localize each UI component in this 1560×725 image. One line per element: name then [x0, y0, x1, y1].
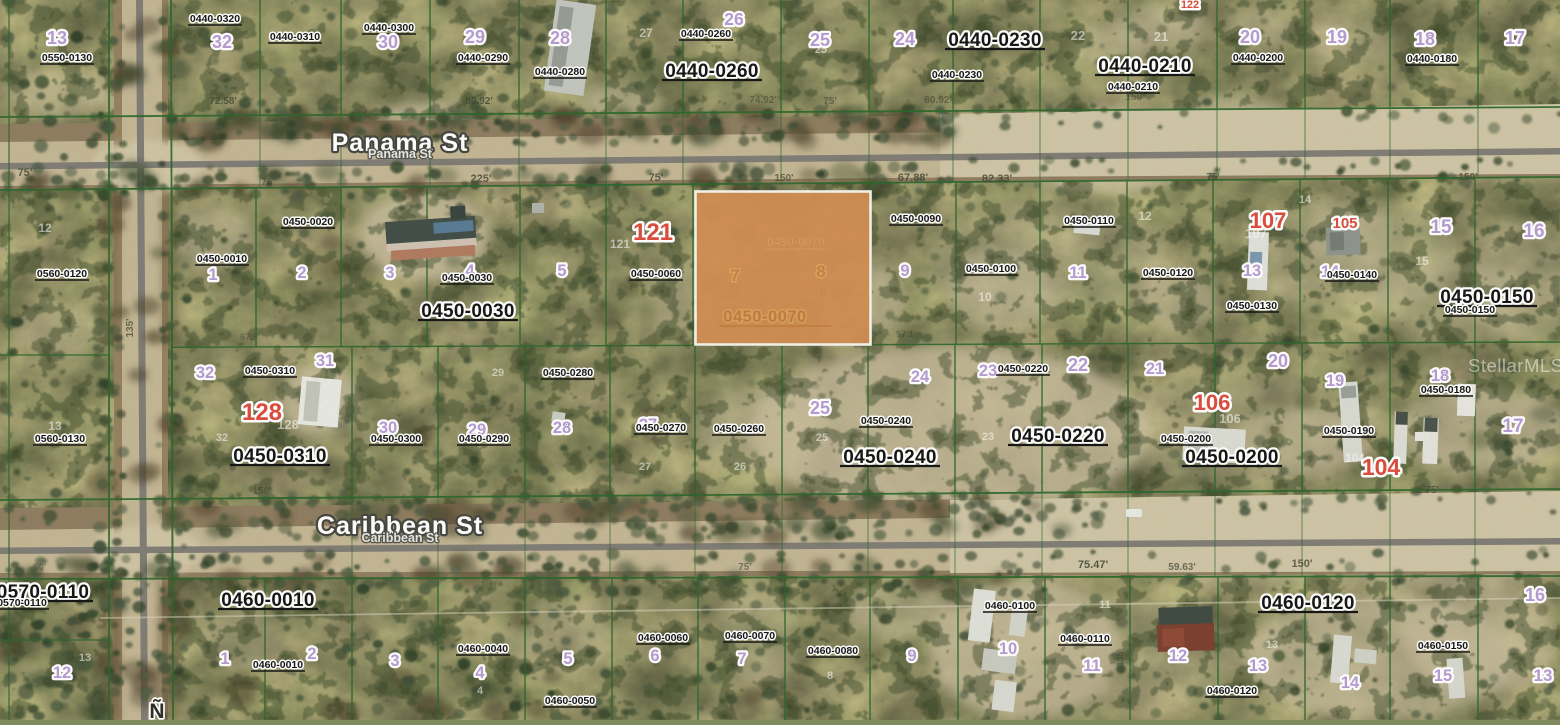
svg-text:StellarMLS: StellarMLS — [1468, 355, 1560, 376]
